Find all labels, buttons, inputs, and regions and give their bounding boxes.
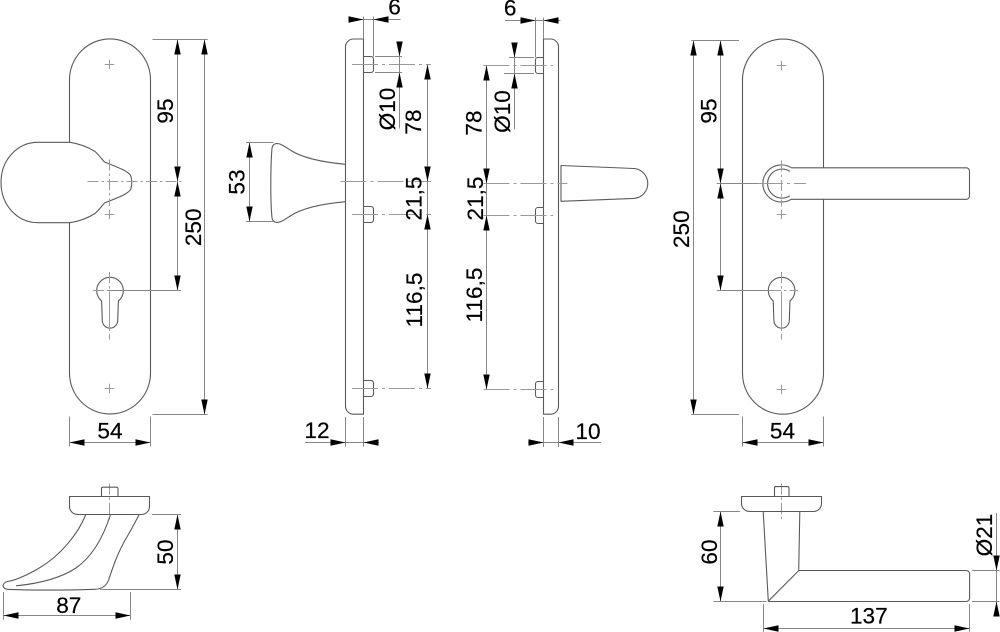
- svg-text:6: 6: [388, 0, 401, 19]
- svg-text:Ø10: Ø10: [375, 88, 400, 131]
- svg-text:60: 60: [697, 539, 722, 564]
- svg-text:54: 54: [97, 419, 122, 444]
- svg-text:250: 250: [669, 210, 694, 248]
- svg-text:6: 6: [504, 0, 517, 20]
- svg-text:Ø21: Ø21: [972, 514, 997, 557]
- svg-text:250: 250: [181, 208, 206, 246]
- svg-text:116,5: 116,5: [402, 273, 427, 328]
- svg-text:21,5: 21,5: [463, 177, 488, 221]
- svg-text:78: 78: [401, 109, 426, 134]
- svg-text:21,5: 21,5: [402, 177, 427, 221]
- svg-text:50: 50: [153, 539, 178, 564]
- svg-text:137: 137: [850, 604, 888, 629]
- svg-text:87: 87: [56, 593, 81, 618]
- svg-text:10: 10: [575, 419, 600, 444]
- svg-text:Ø10: Ø10: [490, 90, 515, 133]
- svg-text:12: 12: [304, 418, 329, 443]
- svg-text:95: 95: [153, 98, 178, 123]
- svg-text:54: 54: [770, 419, 795, 444]
- svg-text:53: 53: [225, 169, 250, 194]
- svg-text:78: 78: [462, 110, 487, 135]
- svg-text:116,5: 116,5: [462, 268, 487, 323]
- svg-text:95: 95: [697, 98, 722, 123]
